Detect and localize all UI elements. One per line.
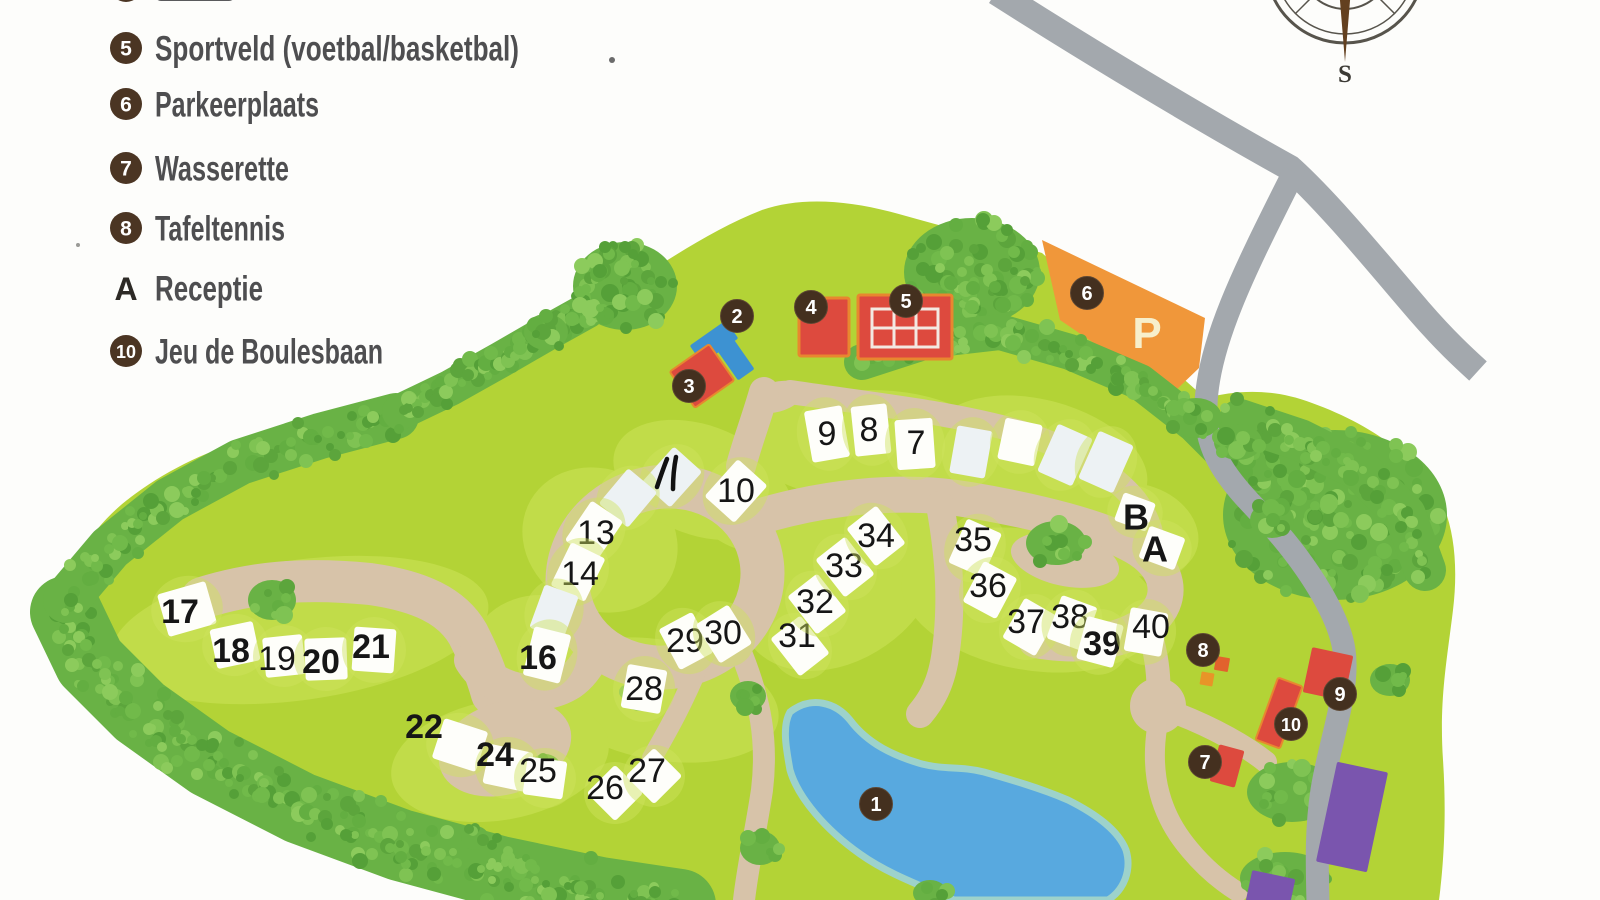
svg-text:Sportveld (voetbal/basketbal): Sportveld (voetbal/basketbal)	[155, 30, 519, 69]
svg-text:21: 21	[352, 628, 390, 666]
svg-text:37: 37	[1007, 603, 1045, 641]
svg-text:35: 35	[954, 521, 992, 559]
svg-text:9: 9	[818, 415, 837, 453]
svg-text:3: 3	[683, 376, 694, 398]
svg-text:P: P	[1132, 309, 1161, 358]
svg-text:7: 7	[120, 158, 132, 181]
svg-text:8: 8	[120, 218, 132, 241]
svg-text:6: 6	[120, 94, 132, 117]
svg-text:Tafeltennis: Tafeltennis	[155, 210, 285, 249]
svg-text:1: 1	[870, 794, 881, 816]
svg-text:5: 5	[900, 291, 911, 313]
svg-text:25: 25	[519, 752, 557, 790]
svg-text:A: A	[114, 271, 137, 307]
svg-text:6: 6	[1081, 283, 1092, 305]
svg-text:16: 16	[519, 639, 557, 677]
svg-text:8: 8	[860, 411, 879, 449]
svg-text:36: 36	[969, 567, 1007, 605]
svg-text:9: 9	[1334, 684, 1345, 706]
svg-text:10: 10	[1281, 715, 1301, 735]
svg-text:Receptie: Receptie	[155, 270, 263, 309]
svg-text:10: 10	[116, 342, 136, 362]
svg-text:2: 2	[731, 306, 742, 328]
svg-text:Jeu de Boulesbaan: Jeu de Boulesbaan	[155, 333, 383, 372]
svg-text:7: 7	[1199, 752, 1210, 774]
svg-text:34: 34	[857, 517, 895, 555]
svg-text:18: 18	[212, 632, 250, 670]
svg-text:30: 30	[704, 614, 742, 652]
svg-text:27: 27	[628, 752, 666, 790]
svg-text:39: 39	[1083, 625, 1121, 663]
svg-text:S: S	[1338, 61, 1352, 88]
svg-text:7: 7	[907, 424, 926, 462]
svg-text:Parkeerplaats: Parkeerplaats	[155, 86, 319, 125]
svg-text:24: 24	[476, 736, 514, 774]
svg-text:28: 28	[625, 670, 663, 708]
svg-text:26: 26	[586, 769, 624, 807]
svg-text:A: A	[1142, 529, 1168, 570]
svg-text:10: 10	[717, 472, 755, 510]
svg-text:20: 20	[302, 643, 340, 681]
svg-text:5: 5	[120, 38, 132, 61]
svg-text:22: 22	[405, 708, 443, 746]
svg-text:40: 40	[1132, 608, 1170, 646]
svg-text:19: 19	[258, 640, 296, 678]
svg-text:4: 4	[805, 297, 817, 319]
svg-text:8: 8	[1197, 640, 1208, 662]
svg-text:17: 17	[161, 593, 199, 631]
svg-text:Wasserette: Wasserette	[155, 150, 289, 189]
